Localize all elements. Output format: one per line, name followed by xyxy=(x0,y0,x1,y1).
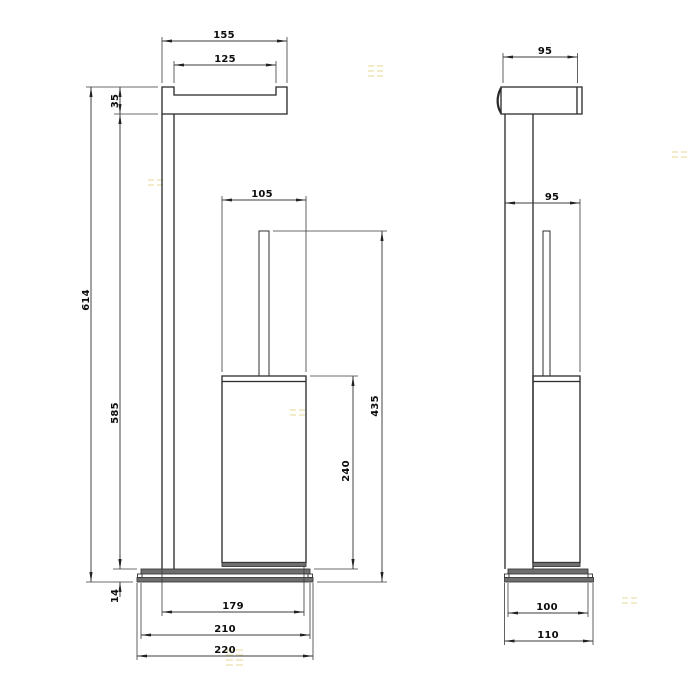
base-foot-front-right xyxy=(308,574,313,578)
dim-label: 585 xyxy=(110,402,121,423)
watermark-mark xyxy=(290,410,305,415)
extension-lines xyxy=(86,87,158,114)
dim-label: 105 xyxy=(251,189,272,200)
watermark-mark xyxy=(672,152,687,157)
base-top-plate-front xyxy=(141,569,310,574)
paper-holder-front-outline xyxy=(162,87,287,114)
dim-label: 95 xyxy=(538,46,552,57)
dim-side-base-depth-outer: 110 xyxy=(505,583,594,645)
dim-label: 35 xyxy=(110,94,121,108)
technical-drawing: 155 125 35 614 585 14 xyxy=(0,0,700,700)
extension-lines xyxy=(222,196,306,372)
dim-label: 614 xyxy=(81,289,92,310)
base-top-plate-side xyxy=(508,569,588,574)
base-bottom-plate-side xyxy=(505,578,594,583)
extension-lines xyxy=(503,53,578,83)
dim-side-base-depth-inner: 100 xyxy=(508,583,588,617)
dim-label: 125 xyxy=(214,54,235,65)
dim-front-top-height: 35 xyxy=(86,87,158,114)
watermark-mark xyxy=(368,66,383,76)
dim-front-brush-total-height: 435 xyxy=(273,231,387,582)
dim-label: 95 xyxy=(545,192,559,203)
dim-front-top-width-inner: 125 xyxy=(174,54,276,83)
column-front-outline xyxy=(162,114,174,569)
base-bottom-plate-front xyxy=(137,578,313,583)
front-view xyxy=(137,87,313,582)
brush-container-side-outline xyxy=(533,376,580,563)
dim-front-overall-height: 614 xyxy=(81,87,133,582)
technical-drawing-canvas: 155 125 35 614 585 14 xyxy=(0,0,700,700)
container-bottom-edge-side xyxy=(533,563,580,567)
dim-front-column-height: 585 xyxy=(110,114,137,569)
dim-front-container-width: 105 xyxy=(222,189,306,372)
dim-label: 155 xyxy=(213,30,234,41)
dim-front-container-height: 240 xyxy=(310,376,358,569)
watermark-mark xyxy=(622,598,637,603)
container-bottom-edge-front xyxy=(222,563,306,567)
dim-label: 110 xyxy=(537,630,558,641)
dim-label: 100 xyxy=(536,602,557,613)
dim-label: 210 xyxy=(214,624,235,635)
dim-label: 220 xyxy=(214,645,235,656)
dim-side-top-depth: 95 xyxy=(503,46,578,83)
side-view xyxy=(498,87,594,582)
paper-holder-side-outline xyxy=(501,87,582,114)
watermark-marks xyxy=(148,66,687,665)
dim-label: 14 xyxy=(110,589,121,603)
dim-label: 240 xyxy=(341,460,352,481)
brush-handle-side-outline xyxy=(543,231,550,376)
dim-label: 179 xyxy=(222,601,243,612)
base-foot-front-left xyxy=(138,574,143,578)
brush-handle-front-outline xyxy=(259,231,269,376)
dim-front-base-height: 14 xyxy=(110,555,121,603)
dim-label: 435 xyxy=(370,395,381,416)
base-foot-side-left xyxy=(505,574,510,578)
brush-container-front-outline xyxy=(222,376,306,563)
column-side-outline xyxy=(505,114,533,569)
dim-front-base-width-outer: 220 xyxy=(137,583,313,660)
watermark-mark xyxy=(148,180,163,185)
base-foot-side-right xyxy=(588,574,593,578)
